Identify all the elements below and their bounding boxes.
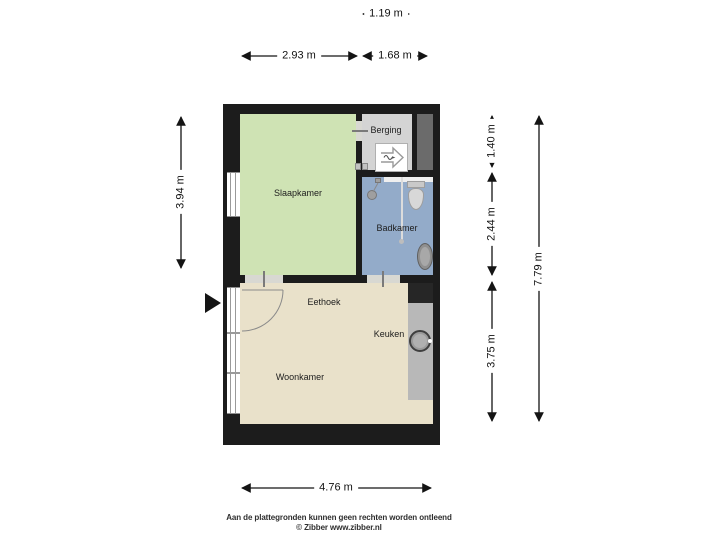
label-keuken: Keuken — [374, 329, 405, 339]
label-eethoek: Eethoek — [307, 297, 340, 307]
label-berging: Berging — [370, 125, 401, 135]
dim-label-berging-height: 1.40 m — [485, 119, 500, 163]
footer-credit: © Zibber www.zibber.nl — [0, 523, 678, 532]
dim-label-badkamer-width: 1.68 m — [373, 49, 417, 64]
dim-label-total-height: 7.79 m — [532, 247, 547, 291]
door-swing-arc — [242, 290, 283, 331]
dim-label-slaapkamer-height: 3.94 m — [174, 170, 189, 214]
label-woonkamer: Woonkamer — [276, 372, 324, 382]
dim-label-woonkamer-width: 4.76 m — [314, 481, 358, 496]
dim-label-slaapkamer-width: 2.93 m — [277, 49, 321, 64]
shower-hose — [373, 183, 378, 192]
dim-label-badkamer-height: 2.44 m — [485, 202, 500, 246]
floorplan-canvas: Slaapkamer Berging Badkamer Eethoek Keuk… — [0, 0, 720, 540]
dimension-overlay — [0, 0, 720, 540]
label-slaapkamer: Slaapkamer — [274, 188, 322, 198]
footer-disclaimer: Aan de plattegronden kunnen geen rechten… — [0, 513, 678, 522]
dim-label-berging-width: 1.19 m — [364, 7, 408, 22]
label-badkamer: Badkamer — [376, 223, 417, 233]
entrance-arrow-icon — [205, 293, 221, 313]
dim-label-woonkamer-height: 3.75 m — [485, 329, 500, 373]
